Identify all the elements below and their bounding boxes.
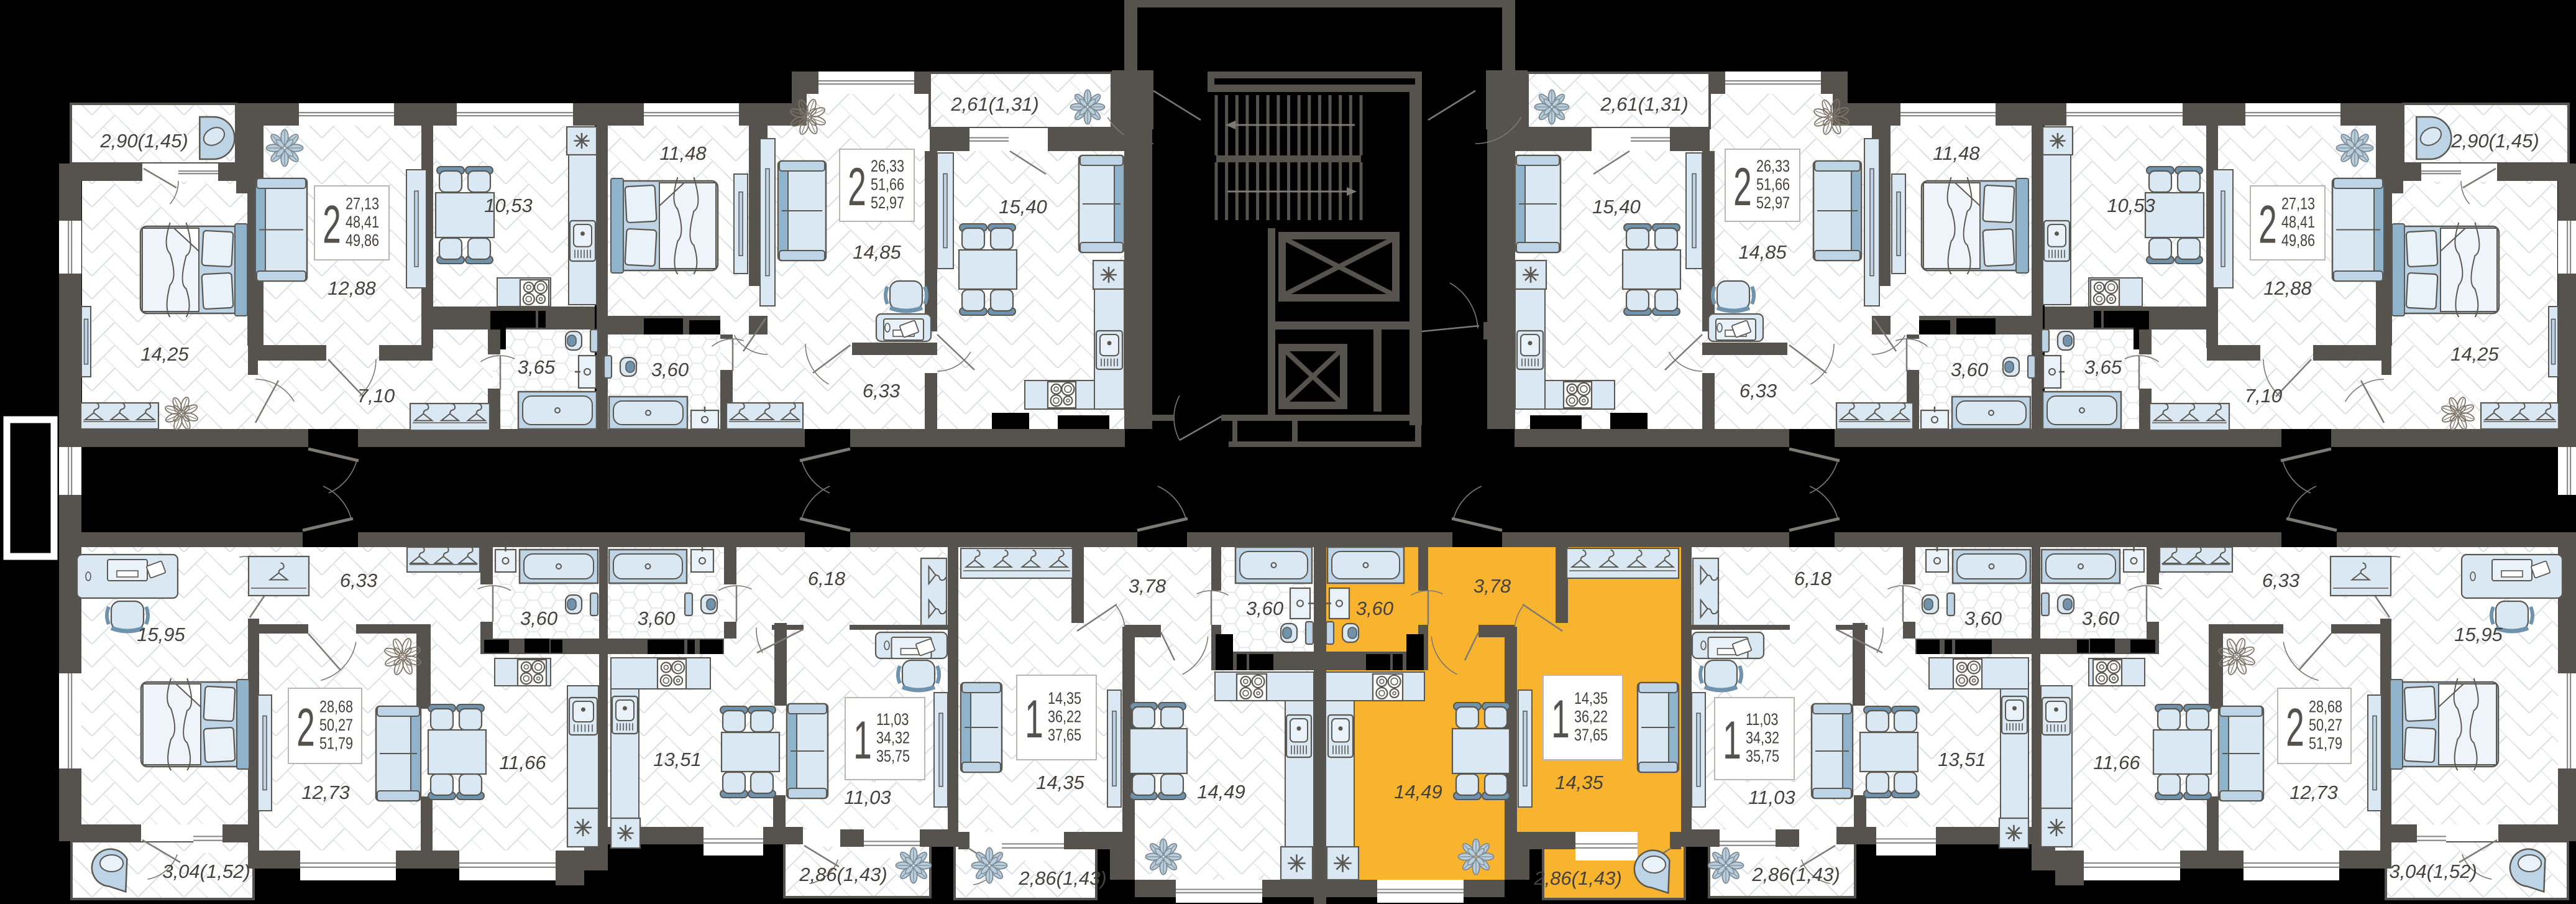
svg-text:37,65: 37,65 [1574, 726, 1608, 745]
svg-text:2,90(1,45): 2,90(1,45) [99, 130, 188, 152]
svg-text:6,33: 6,33 [340, 570, 377, 591]
svg-text:52,97: 52,97 [871, 194, 904, 213]
svg-text:11,03: 11,03 [844, 786, 891, 808]
svg-text:6,18: 6,18 [1794, 568, 1832, 589]
svg-text:14,25: 14,25 [2450, 343, 2499, 365]
svg-text:2,86(1,43): 2,86(1,43) [1751, 864, 1840, 885]
svg-text:35,75: 35,75 [876, 747, 910, 766]
svg-text:2: 2 [2258, 195, 2277, 255]
svg-text:3,60: 3,60 [2082, 607, 2119, 629]
svg-text:14,49: 14,49 [1197, 781, 1245, 803]
svg-text:13,51: 13,51 [653, 749, 702, 770]
svg-text:3,65: 3,65 [2084, 356, 2122, 378]
svg-text:11,03: 11,03 [1748, 786, 1795, 808]
svg-text:28,68: 28,68 [2309, 698, 2342, 716]
svg-text:3,65: 3,65 [518, 356, 556, 378]
svg-text:37,65: 37,65 [1048, 726, 1081, 745]
svg-text:6,33: 6,33 [1739, 380, 1777, 402]
svg-text:2: 2 [296, 698, 315, 758]
svg-text:51,66: 51,66 [871, 175, 904, 194]
svg-text:35,75: 35,75 [1746, 747, 1779, 766]
svg-text:10,53: 10,53 [484, 195, 533, 216]
svg-text:15,40: 15,40 [999, 196, 1047, 218]
svg-text:2: 2 [848, 157, 866, 217]
svg-text:49,86: 49,86 [2281, 231, 2315, 250]
svg-text:2,61(1,31): 2,61(1,31) [1600, 93, 1688, 115]
svg-text:36,22: 36,22 [1574, 708, 1608, 726]
svg-text:14,35: 14,35 [1048, 690, 1081, 708]
svg-text:14,35: 14,35 [1574, 690, 1608, 708]
svg-text:26,33: 26,33 [1756, 157, 1790, 176]
svg-text:2,61(1,31): 2,61(1,31) [950, 93, 1038, 115]
svg-text:6,33: 6,33 [2262, 570, 2299, 591]
svg-text:10,53: 10,53 [2107, 195, 2155, 216]
svg-text:3,04(1,52): 3,04(1,52) [2389, 860, 2477, 882]
svg-text:2,86(1,43): 2,86(1,43) [1018, 867, 1106, 889]
svg-text:3,78: 3,78 [1129, 575, 1167, 597]
svg-text:14,85: 14,85 [1738, 241, 1787, 263]
svg-text:1: 1 [1551, 690, 1570, 749]
svg-text:3,04(1,52): 3,04(1,52) [162, 860, 250, 882]
svg-text:34,32: 34,32 [876, 729, 910, 747]
svg-text:11,48: 11,48 [659, 142, 707, 164]
svg-text:7,10: 7,10 [2245, 385, 2282, 407]
svg-text:7,10: 7,10 [357, 385, 395, 407]
svg-text:2,86(1,43): 2,86(1,43) [799, 864, 887, 885]
svg-text:11,03: 11,03 [876, 711, 909, 729]
svg-text:1: 1 [1025, 690, 1043, 749]
svg-text:11,48: 11,48 [1933, 142, 1980, 164]
svg-text:2: 2 [2286, 698, 2304, 758]
svg-text:48,41: 48,41 [2281, 213, 2315, 232]
svg-text:14,25: 14,25 [140, 343, 189, 365]
svg-text:12,73: 12,73 [301, 782, 350, 803]
svg-text:3,60: 3,60 [1964, 607, 2002, 629]
svg-text:6,33: 6,33 [863, 380, 900, 402]
svg-text:3,60: 3,60 [638, 607, 675, 629]
svg-text:52,97: 52,97 [1756, 194, 1790, 213]
svg-text:51,79: 51,79 [2309, 734, 2342, 753]
svg-text:1: 1 [853, 711, 872, 770]
svg-text:11,03: 11,03 [1746, 711, 1778, 729]
svg-text:3,78: 3,78 [1474, 575, 1511, 597]
svg-text:11,66: 11,66 [499, 752, 546, 773]
svg-text:48,41: 48,41 [346, 213, 379, 232]
svg-text:11,66: 11,66 [2093, 752, 2140, 773]
svg-text:50,27: 50,27 [319, 716, 353, 735]
svg-text:12,73: 12,73 [2290, 782, 2338, 803]
svg-text:14,35: 14,35 [1555, 772, 1603, 793]
svg-text:1: 1 [1723, 711, 1741, 770]
svg-text:27,13: 27,13 [2281, 195, 2315, 213]
svg-text:2,86(1,43): 2,86(1,43) [1533, 867, 1621, 889]
svg-text:6,18: 6,18 [808, 568, 846, 589]
svg-text:15,40: 15,40 [1592, 196, 1641, 218]
svg-text:12,88: 12,88 [328, 277, 376, 299]
svg-text:3,60: 3,60 [1246, 597, 1283, 619]
svg-text:26,33: 26,33 [871, 157, 904, 176]
svg-text:28,68: 28,68 [319, 698, 353, 716]
svg-text:51,79: 51,79 [319, 734, 353, 753]
svg-text:12,88: 12,88 [2263, 277, 2312, 299]
svg-text:14,85: 14,85 [853, 241, 901, 263]
svg-text:36,22: 36,22 [1048, 708, 1081, 726]
svg-text:27,13: 27,13 [346, 195, 379, 213]
svg-text:50,27: 50,27 [2309, 716, 2342, 735]
svg-text:3,60: 3,60 [520, 607, 557, 629]
svg-text:51,66: 51,66 [1756, 175, 1790, 194]
svg-text:3,60: 3,60 [651, 359, 689, 381]
svg-text:3,60: 3,60 [1951, 359, 1988, 381]
svg-text:15,95: 15,95 [2454, 624, 2503, 645]
svg-text:2: 2 [1733, 157, 1752, 217]
svg-text:2,90(1,45): 2,90(1,45) [2450, 130, 2539, 152]
svg-text:3,60: 3,60 [1356, 597, 1393, 619]
svg-text:13,51: 13,51 [1938, 749, 1986, 770]
svg-text:2: 2 [323, 195, 341, 255]
svg-text:49,86: 49,86 [346, 231, 379, 250]
svg-text:14,49: 14,49 [1394, 781, 1442, 803]
svg-text:14,35: 14,35 [1036, 772, 1084, 793]
svg-text:34,32: 34,32 [1746, 729, 1779, 747]
svg-text:15,95: 15,95 [137, 624, 185, 645]
